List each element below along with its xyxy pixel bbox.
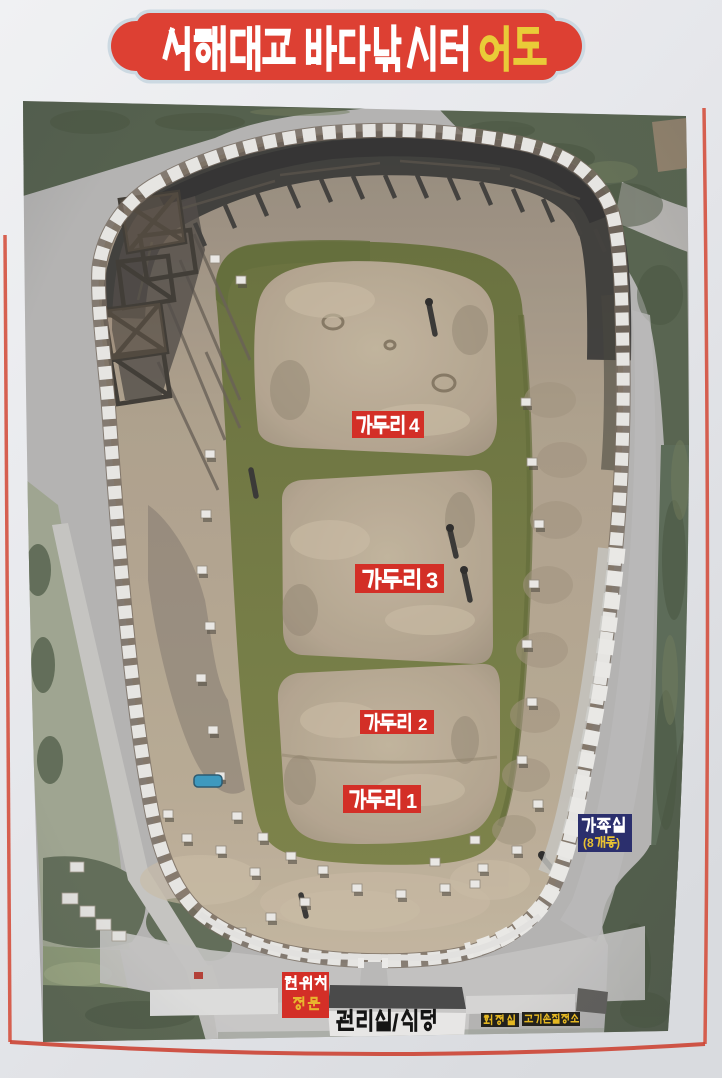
svg-text:4: 4 [409,416,420,437]
svg-text:3: 3 [426,568,438,593]
svg-text:/: / [392,1010,399,1037]
svg-text:): ) [616,836,620,850]
svg-text:2: 2 [418,715,427,734]
svg-text:1: 1 [406,791,417,813]
svg-text:(8: (8 [583,836,594,850]
